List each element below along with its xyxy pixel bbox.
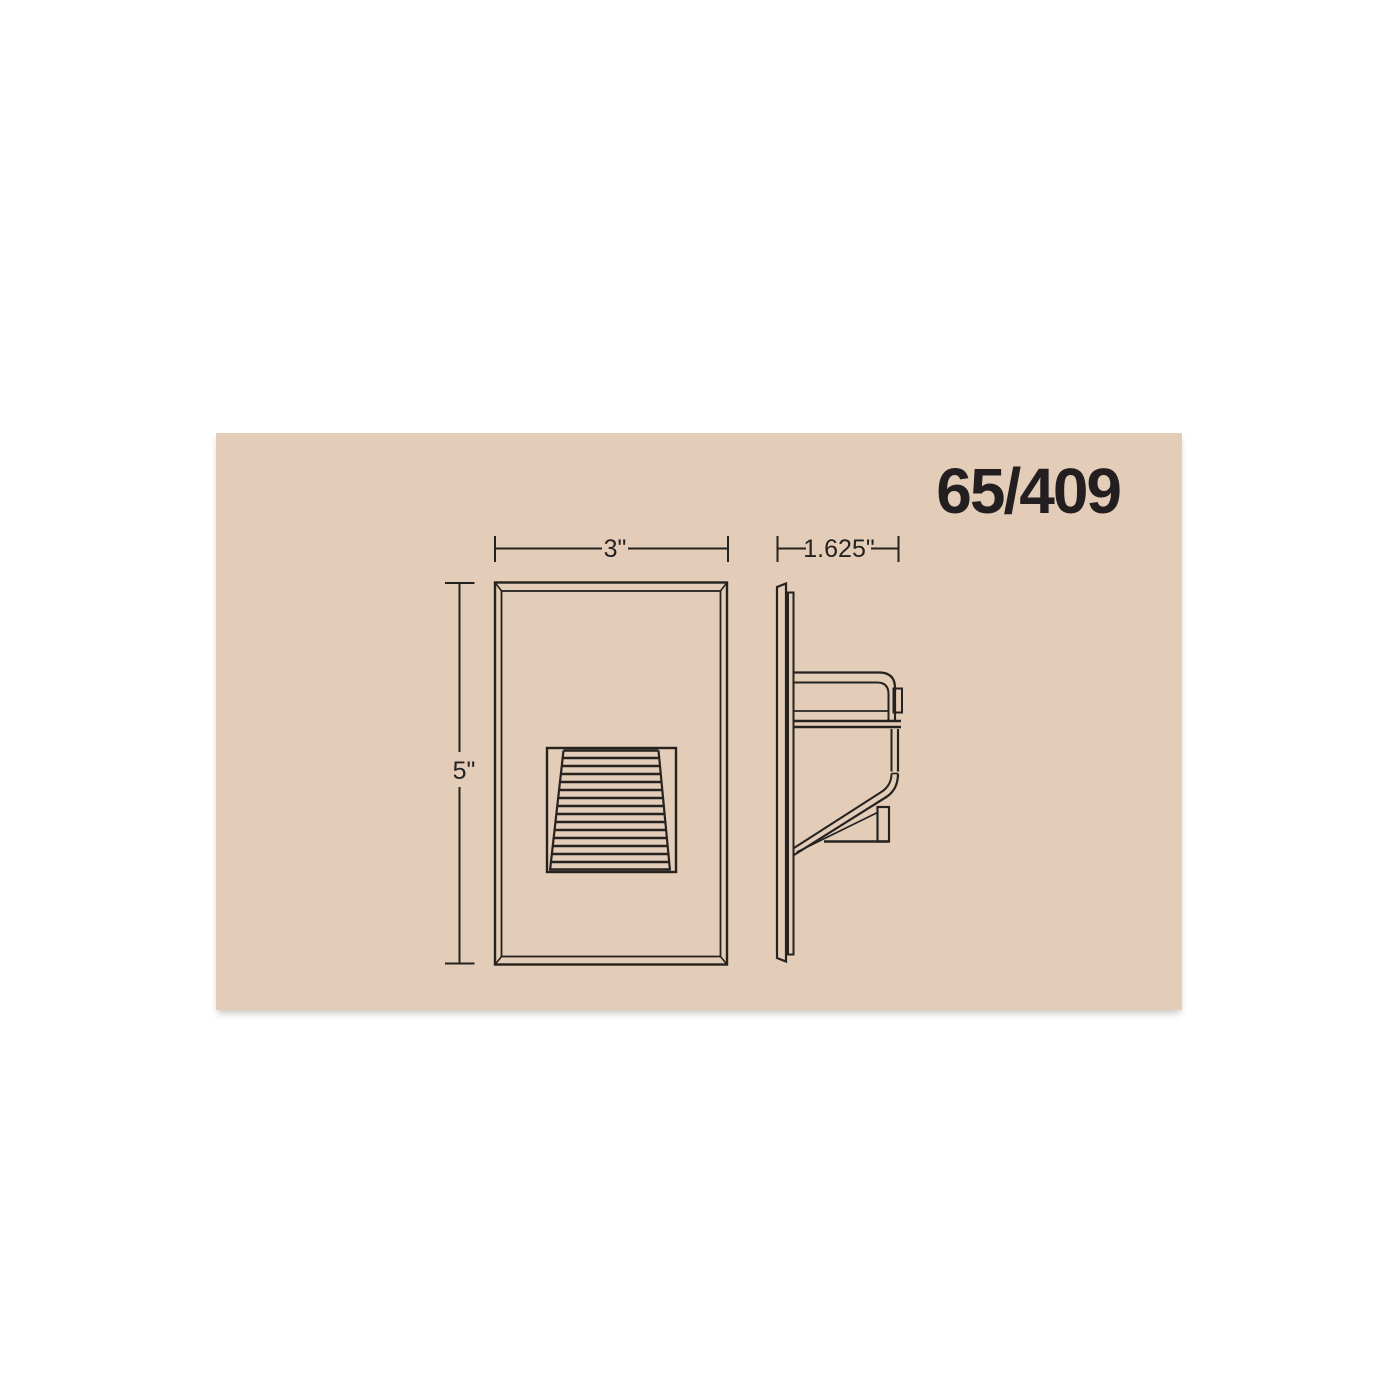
housing-profile [794, 673, 903, 856]
dimension-side-depth: 1.625" [778, 535, 899, 563]
dimension-label-side-depth: 1.625" [803, 535, 874, 563]
technical-drawing: 3" 5" [216, 433, 1182, 1010]
junction-box [878, 807, 890, 842]
gusset-line [797, 813, 878, 853]
dimension-label-front-width: 3" [604, 535, 627, 563]
backplate-profile [788, 593, 794, 955]
louver-side-right [659, 751, 671, 871]
louver-window [547, 748, 676, 872]
spec-panel: 65/409 3" 5" [216, 433, 1182, 1010]
dimension-front-height: 5" [445, 583, 475, 964]
side-view: 1.625" [777, 535, 902, 962]
housing-top-outer [794, 673, 896, 722]
dimension-label-front-height: 5" [453, 757, 476, 785]
louver-slats [550, 751, 670, 870]
dimension-front-width: 3" [495, 535, 728, 563]
faceplate-profile [777, 584, 786, 962]
page: 65/409 3" 5" [0, 0, 1400, 1400]
louver-side-left [550, 751, 564, 871]
housing-top-inner [794, 683, 889, 722]
side-faceplate [777, 584, 794, 962]
front-view: 3" 5" [445, 535, 728, 965]
